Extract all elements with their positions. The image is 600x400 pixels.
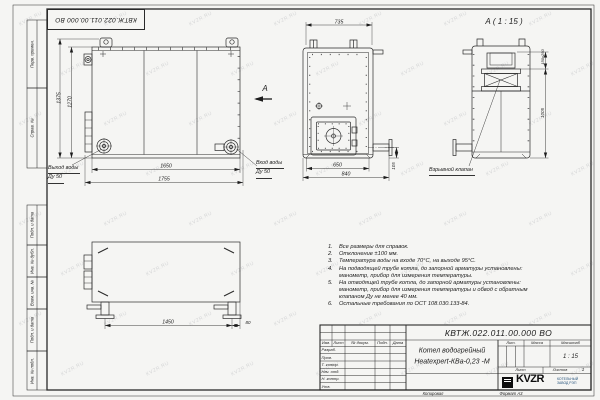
callout-water-outlet: Выход воды Ду 50 xyxy=(48,165,80,184)
note-number: 2. xyxy=(328,251,339,258)
note-text: Все размеры для справок. xyxy=(339,244,409,251)
note-text: На отводящей трубе котла, до запорной ар… xyxy=(339,280,528,287)
dim-bottom-leg-span: 1450 xyxy=(162,320,174,325)
tb-col-list: Лист xyxy=(333,341,343,345)
tb-sheet-label: Лист xyxy=(515,368,525,372)
note-text: клапаном Ду не менее 40 мм. xyxy=(339,294,528,301)
dim-bottom-offset: 80 xyxy=(245,321,250,326)
note-text: манометр, прибор для измерения температу… xyxy=(339,287,528,294)
tb-row-utv: Утв. xyxy=(322,385,331,389)
dim-front-height-overall: 1375 xyxy=(57,92,62,104)
note-number: 3. xyxy=(328,258,339,265)
note-item: 1.Все размеры для справок. xyxy=(328,244,578,251)
dim-side-width-door: 650 xyxy=(333,163,342,168)
dim-side-width-top: 735 xyxy=(335,20,344,25)
tb-sheets-label: Листов xyxy=(553,368,568,372)
dim-front-height-body: 1270 xyxy=(68,96,73,108)
designation-cell: КВТЖ.022.011.00.000 ВО xyxy=(445,328,552,337)
margin-label-podp-data-1: Подп. и дата xyxy=(30,212,35,238)
note-item: 3.Температура воды на входе 70°С, на вых… xyxy=(328,258,578,265)
tb-row-tkontr: Т. контр. xyxy=(322,363,339,367)
tb-scale-value: 1 : 15 xyxy=(563,354,578,360)
water-outlet-dn: Ду 50 xyxy=(48,174,64,183)
note-item: 2.Отклонение ±100 мм. xyxy=(328,251,578,258)
view-arrow-label: А xyxy=(262,85,267,93)
water-inlet-dn: Ду 50 xyxy=(256,169,272,178)
note-text: манометр, прибор для измерения температу… xyxy=(339,273,522,280)
tb-row-razrab: Разраб. xyxy=(322,348,336,352)
note-text: Температура воды на входе 70°С, на выход… xyxy=(339,258,476,265)
margin-label-inv-dubl: Инв. № дубл. xyxy=(30,248,35,274)
tb-col-doc: № докум. xyxy=(351,341,369,345)
kvzr-logo-text: KVZR xyxy=(516,374,544,385)
tb-row-prov: Пров. xyxy=(322,356,333,360)
dim-side-width-overall: 840 xyxy=(342,172,351,177)
tb-sheets-value: 1 xyxy=(582,368,585,373)
note-item: 5.На отводящей трубе котла, до запорной … xyxy=(328,280,578,302)
dim-detail-height: 1005 xyxy=(541,108,546,118)
company-name: КОТЕЛЬНЫЙ ЗАВОД РЭП xyxy=(557,377,578,387)
note-item: 4.На подводящей трубе котла, до запорной… xyxy=(328,266,578,280)
product-name-line2: Heatexpert-КВа-0,23 -М xyxy=(414,358,489,365)
tb-mass-label: Масса xyxy=(531,341,543,345)
water-outlet-label: Выход воды xyxy=(48,165,80,174)
tb-lit-label: Лит. xyxy=(506,341,515,345)
kvzr-logo-icon xyxy=(502,377,513,388)
format-label: Формат А3 xyxy=(500,391,523,395)
note-number: 4. xyxy=(328,266,339,280)
note-text: Отклонение ±100 мм. xyxy=(339,251,398,258)
tb-col-data: Дата xyxy=(393,341,404,345)
company-line2: ЗАВОД РЭП xyxy=(557,381,578,386)
note-number: 6. xyxy=(328,301,339,308)
margin-label-inv-podl: Инв. № подл. xyxy=(30,358,35,384)
dim-front-width-ports: 1650 xyxy=(160,164,172,169)
margin-label-podp-data-2: Подп. и дата xyxy=(30,317,35,343)
tb-row-nachotd: Нач. отд. xyxy=(322,370,340,374)
note-number: 5. xyxy=(328,280,339,302)
tb-scale-label: Масштаб xyxy=(561,341,580,345)
margin-label-perv-primen: Перв. примен. xyxy=(30,40,35,68)
water-inlet-label: Вход воды xyxy=(256,160,284,169)
drawing-sheet: KVZR.RUKVZR.RUKVZR.RUKVZR.RUKVZR.RUKVZR.… xyxy=(0,0,600,400)
note-text: На подводящей трубе котла, до запорной а… xyxy=(339,266,522,273)
explosion-valve-label: Взрывной клапан xyxy=(429,167,475,176)
detail-view-title: А ( 1 : 15 ) xyxy=(485,18,522,26)
margin-label-vzam-inv: Взам. инв. № xyxy=(30,280,35,306)
dim-front-width-overall: 1755 xyxy=(158,177,170,182)
note-item: 6.Остальные требования по ОСТ 108.030.13… xyxy=(328,301,578,308)
callout-water-inlet: Вход воды Ду 50 xyxy=(256,160,284,179)
product-name-line1: Котел водогрейный xyxy=(419,348,486,355)
notes-list: 1.Все размеры для справок. 2.Отклонение … xyxy=(328,244,578,309)
tb-row-nkontr: Н. контр. xyxy=(322,377,340,381)
dim-side-stub-height: 105 xyxy=(392,162,397,170)
tb-col-izm: Изм. xyxy=(322,341,331,345)
tb-col-podp: Подп. xyxy=(377,341,388,345)
copied-label: Копировал xyxy=(423,391,444,395)
note-number: 1. xyxy=(328,244,339,251)
note-text: Остальные требования по ОСТ 108.030.133-… xyxy=(339,301,469,308)
margin-label-sprav-no: Справ. № xyxy=(30,118,35,137)
callout-explosion-valve: Взрывной клапан xyxy=(429,167,475,176)
dim-detail-valve-size: 150x250 xyxy=(541,49,545,64)
